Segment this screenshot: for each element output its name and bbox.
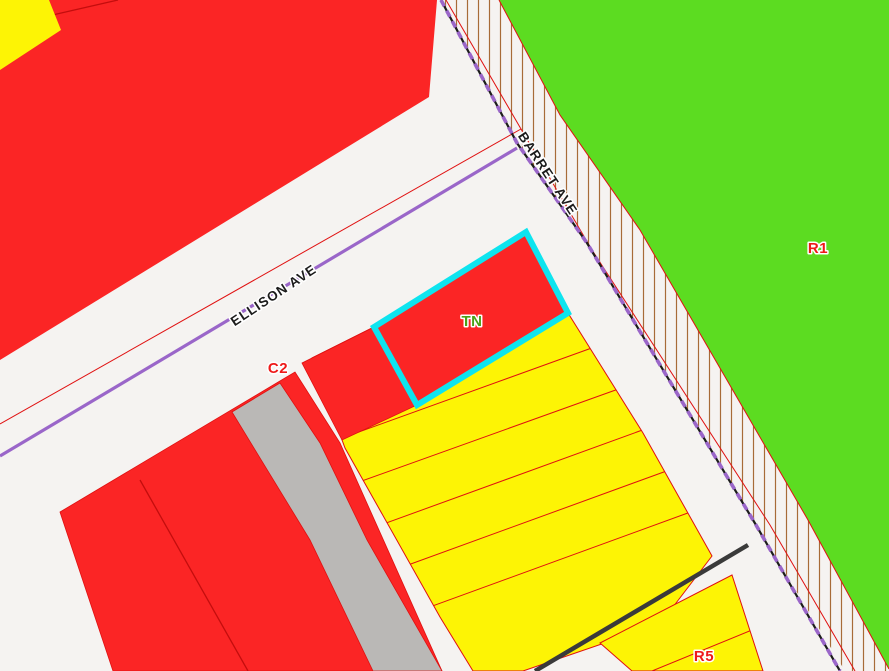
zoning-map-canvas[interactable]: ELLISON AVE BARRET AVE C2 TN R1 R5	[0, 0, 889, 671]
zone-label-r1: R1	[808, 240, 828, 257]
zone-label-c2: C2	[268, 360, 288, 377]
zone-label-tn: TN	[462, 313, 483, 330]
zone-label-r5: R5	[694, 648, 714, 665]
